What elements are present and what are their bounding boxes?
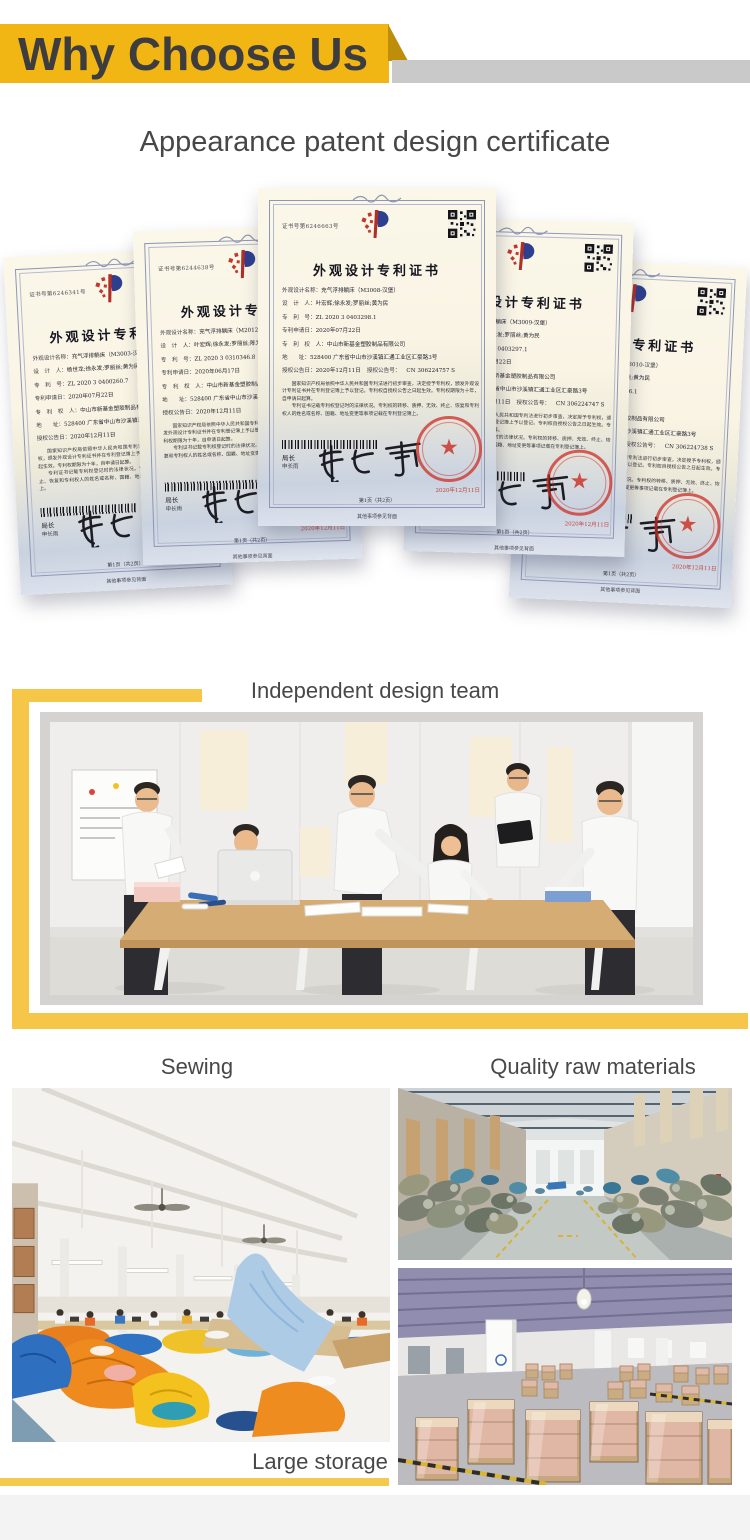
page-bottom-strip [0,1495,750,1540]
storage-photo-illustration [398,1268,732,1485]
qr-code-icon [448,210,476,238]
director-block: 局长 申长雨 [41,521,58,540]
application-date: 2020年06月17日 [195,368,240,375]
grant-number: CN 306224757 S [406,368,455,374]
grant-number: CN 306224747 S [556,401,605,408]
certificate-fields: 外观设计名称：充气浮排躺床（M3008-汉堡） 设 计 人：叶宏辉;徐永发;罗丽… [282,285,480,379]
qr-code-icon [697,287,726,316]
seal-date: 2020年12月11日 [565,519,610,528]
page-note: 第1页（共2页） [258,497,496,504]
sewing-factory-photo [12,1088,390,1442]
cnipa-logo-icon [504,240,541,277]
grant-number: CN 306224738 S [665,444,714,452]
cnipa-logo-icon [225,248,262,285]
patent-number: ZL 2020 3 0310346.8 [194,355,255,363]
designers: 叶宏辉;徐永发;罗丽丝;黄为民 [316,301,389,307]
sewing-photo-illustration [12,1088,390,1442]
designers: 杨世龙;徐永发;罗丽丝;黄为民 [67,364,140,374]
grant-date: 2020年12月11日 [196,409,241,416]
border-ornament-icon [497,225,549,236]
designers: 叶宏辉;徐永发;罗丽丝;陈为民 [194,341,267,349]
patentee: 中山市新基金塑胶制品有限公司 [327,342,405,348]
design-name: 充气浮排躺床（M3008-汉堡） [321,288,399,294]
back-note: 其他事项参见背面 [403,542,624,555]
cnipa-logo-icon [359,208,395,244]
certificate-title: 外观设计专利证书 [258,260,496,279]
raw-materials-photo [398,1088,732,1260]
patent-number: ZL 2020 3 0403298.1 [316,315,377,321]
seal-date: 2020年12月11日 [436,486,481,494]
cnipa-logo-icon [92,271,130,309]
yellow-frame-bottom [12,1013,748,1029]
materials-section-label: Quality raw materials [490,1054,695,1080]
grant-date: 2020年12月11日 [316,368,361,374]
sewing-section-label: Sewing [161,1054,233,1080]
team-section-label: Independent design team [251,678,499,704]
grant-date: 2020年12月11日 [70,433,116,441]
team-photo-illustration [50,722,693,995]
director-signature [313,438,428,482]
large-storage-photo [398,1268,732,1485]
yellow-frame-left [12,689,29,1028]
certificate-body-text: 国家知识产权局依照中华人民共和国专利法进行初步审查，决定授予专利权，颁发外观设计… [282,381,479,418]
patent-certificate: 证书号第6246663号 外 [258,188,496,526]
yellow-frame-top [12,689,202,702]
patent-number: ZL 2020 3 0400260.7 [67,378,128,387]
materials-photo-illustration [398,1088,732,1260]
official-seal: ★ [416,416,482,482]
back-note: 其他事项参见背面 [258,513,496,520]
border-ornament-icon [351,194,403,204]
application-date: 2020年07月22日 [316,328,361,334]
patentee-address: 528400 广东省中山市沙溪镇汇通工业区汇豪路3号 [310,355,437,361]
laptop [210,850,300,905]
qr-code-icon [584,244,613,273]
certificate-number: 证书号第6246663号 [282,222,339,230]
application-date: 2020年07月22日 [68,392,114,400]
storage-underline-bar [0,1478,389,1486]
certificate-fan: 证书号第6246341号 外 [0,0,750,650]
director-block: 局长 申长雨 [165,496,182,515]
back-note: 其他事项参见背面 [143,549,362,563]
director-block: 局长 申长雨 [282,454,299,472]
design-team-photo [40,712,703,1005]
storage-section-label: Large storage [252,1449,388,1475]
